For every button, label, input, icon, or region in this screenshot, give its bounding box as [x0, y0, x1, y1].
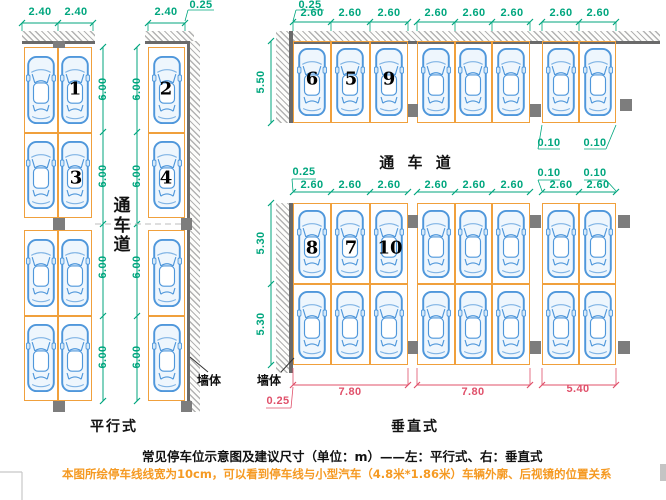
wall-block [408, 104, 418, 117]
dim-label: 2.60 [300, 7, 323, 19]
car-icon [458, 208, 488, 280]
parking-stall [417, 284, 455, 365]
dim-label: 2.40 [28, 6, 51, 18]
parking-stall [148, 316, 185, 402]
car-icon [26, 322, 56, 394]
dim-label: 0.10 [537, 137, 560, 149]
parking-stall [579, 284, 616, 365]
car-icon [546, 208, 576, 280]
car-icon [583, 289, 613, 361]
parking-stall [370, 284, 408, 365]
dim-label: 0.10 [537, 167, 560, 179]
parking-stall [455, 284, 493, 365]
dim-label-red: 5.40 [566, 383, 589, 395]
stall-number: 6 [306, 69, 319, 90]
wall-block [181, 218, 192, 230]
dim-label: 6.00 [131, 345, 143, 368]
stall-group-right-b3 [542, 203, 616, 365]
car-icon [421, 46, 451, 118]
dim-label: 6.00 [131, 77, 143, 100]
dim-label: 6.00 [131, 255, 143, 278]
dim-label-red: 7.80 [338, 386, 361, 398]
dim-label: 2.60 [424, 179, 447, 191]
dim-label: 2.60 [549, 7, 572, 19]
dim-label: 2.40 [64, 6, 87, 18]
parking-stall [24, 47, 58, 133]
stall-number: 2 [160, 79, 173, 100]
dim-label: 6.00 [131, 164, 143, 187]
wall-hatch-right-upper-left [276, 31, 293, 123]
dim-label: 2.60 [424, 7, 447, 19]
parking-stall [417, 41, 455, 123]
dim-label: 2.60 [462, 179, 485, 191]
car-icon [60, 322, 90, 394]
stall-number: 10 [377, 238, 402, 259]
stall-group-right-b2 [417, 203, 530, 365]
wall-block [530, 215, 541, 228]
caption-title: 常见停车位示意图及建议尺寸（单位：m）——左：平行式、右：垂直式 [142, 446, 543, 465]
parking-stall [331, 284, 369, 365]
stall-group-left-a1 [24, 47, 92, 218]
car-icon [26, 237, 56, 309]
parking-stall [492, 41, 530, 123]
dim-label: 5.30 [255, 312, 267, 335]
parking-stall [579, 203, 616, 284]
dim-label: 2.60 [300, 179, 323, 191]
stall-number: 7 [345, 238, 358, 259]
stall-group-left-b1 [148, 47, 185, 218]
type-label-parallel: 平行式 [90, 416, 138, 436]
wall-block [53, 41, 65, 48]
parking-stall [492, 284, 530, 365]
stall-group-left-a2 [24, 230, 92, 401]
dim-label: 2.60 [377, 179, 400, 191]
car-icon [297, 289, 327, 361]
car-icon [60, 237, 90, 309]
parking-stall [492, 203, 530, 284]
car-icon [374, 289, 404, 361]
dim-label: 5.50 [255, 70, 267, 93]
parking-stall [24, 230, 58, 316]
parking-stall [24, 316, 58, 402]
wall-block [408, 341, 418, 354]
dim-label: 2.60 [586, 179, 609, 191]
dim-label: 2.60 [500, 7, 523, 19]
caption-note: 本图所绘停车线线宽为10cm，可以看到停车线与小型汽车（4.8米*1.86米）车… [62, 466, 612, 482]
car-icon [152, 322, 182, 394]
dim-label: 6.00 [97, 164, 109, 187]
lane-label-left: 通 车 道 [114, 197, 131, 256]
stall-group-left-b2 [148, 230, 185, 401]
wall-label-right: 墙体 [257, 372, 281, 389]
wall-label-left: 墙体 [197, 372, 221, 389]
car-icon [496, 289, 526, 361]
parking-stall [58, 230, 92, 316]
parking-stall [24, 133, 58, 219]
dim-label: 6.00 [97, 255, 109, 278]
stall-number: 4 [160, 168, 173, 189]
dim-label: 2.60 [549, 179, 572, 191]
parking-stall [542, 203, 579, 284]
dim-label: 5.30 [255, 231, 267, 254]
dim-label: 0.10 [583, 167, 606, 179]
parking-stall [542, 284, 579, 365]
parking-stall [455, 41, 493, 123]
dim-label: 2.60 [586, 7, 609, 19]
stall-number: 5 [345, 69, 358, 90]
parking-stall [293, 284, 331, 365]
wall-block [530, 341, 541, 354]
stall-group-right-b1 [293, 203, 408, 365]
wall-block [53, 218, 65, 230]
parking-diagram: 2.40 2.40 2.40 0.25 6.00 6.00 6.00 6.00 … [0, 0, 666, 500]
wall-block [530, 104, 541, 117]
car-icon [546, 289, 576, 361]
wall-block [620, 99, 632, 111]
dim-label: 6.00 [97, 77, 109, 100]
car-icon [26, 54, 56, 126]
wall-block [618, 341, 630, 354]
car-icon [458, 289, 488, 361]
dim-label: 6.00 [97, 345, 109, 368]
stall-number: 1 [69, 79, 82, 100]
stall-number: 3 [70, 168, 83, 189]
dim-label: 2.60 [338, 7, 361, 19]
type-label-perpendicular: 垂直式 [391, 416, 439, 436]
stall-number: 8 [306, 238, 319, 259]
dim-label: 2.60 [338, 179, 361, 191]
dim-label-red: 7.80 [461, 386, 484, 398]
wall-block [181, 401, 192, 412]
parking-stall [542, 41, 579, 123]
wall-block [618, 215, 630, 228]
dim-label: 2.40 [154, 6, 177, 18]
car-icon [421, 289, 451, 361]
parking-stall [148, 230, 185, 316]
parking-stall [58, 316, 92, 402]
car-icon [335, 289, 365, 361]
wall-hatch-right-lower-left [276, 203, 293, 373]
parking-stall [579, 41, 616, 123]
dim-label: 2.60 [500, 179, 523, 191]
lane-label-right: 通 车 道 [379, 152, 454, 173]
car-icon [26, 139, 56, 211]
dim-label-red: 0.25 [266, 395, 289, 407]
car-icon [546, 46, 576, 118]
car-icon [583, 46, 613, 118]
dim-label: 0.25 [292, 166, 315, 178]
dim-label: 0.10 [583, 137, 606, 149]
stall-number: 9 [383, 69, 396, 90]
car-icon [496, 46, 526, 118]
car-icon [583, 208, 613, 280]
car-icon [496, 208, 526, 280]
stall-group-right-t3 [542, 41, 616, 123]
dim-label: 2.60 [462, 7, 485, 19]
car-icon [421, 208, 451, 280]
car-icon [152, 237, 182, 309]
dim-label: 2.60 [377, 7, 400, 19]
parking-stall [417, 203, 455, 284]
wall-block [53, 401, 65, 412]
wall-block [408, 215, 418, 228]
parking-stall [455, 203, 493, 284]
stall-group-right-t2 [417, 41, 530, 123]
car-icon [458, 46, 488, 118]
dim-label: 0.25 [189, 0, 212, 11]
